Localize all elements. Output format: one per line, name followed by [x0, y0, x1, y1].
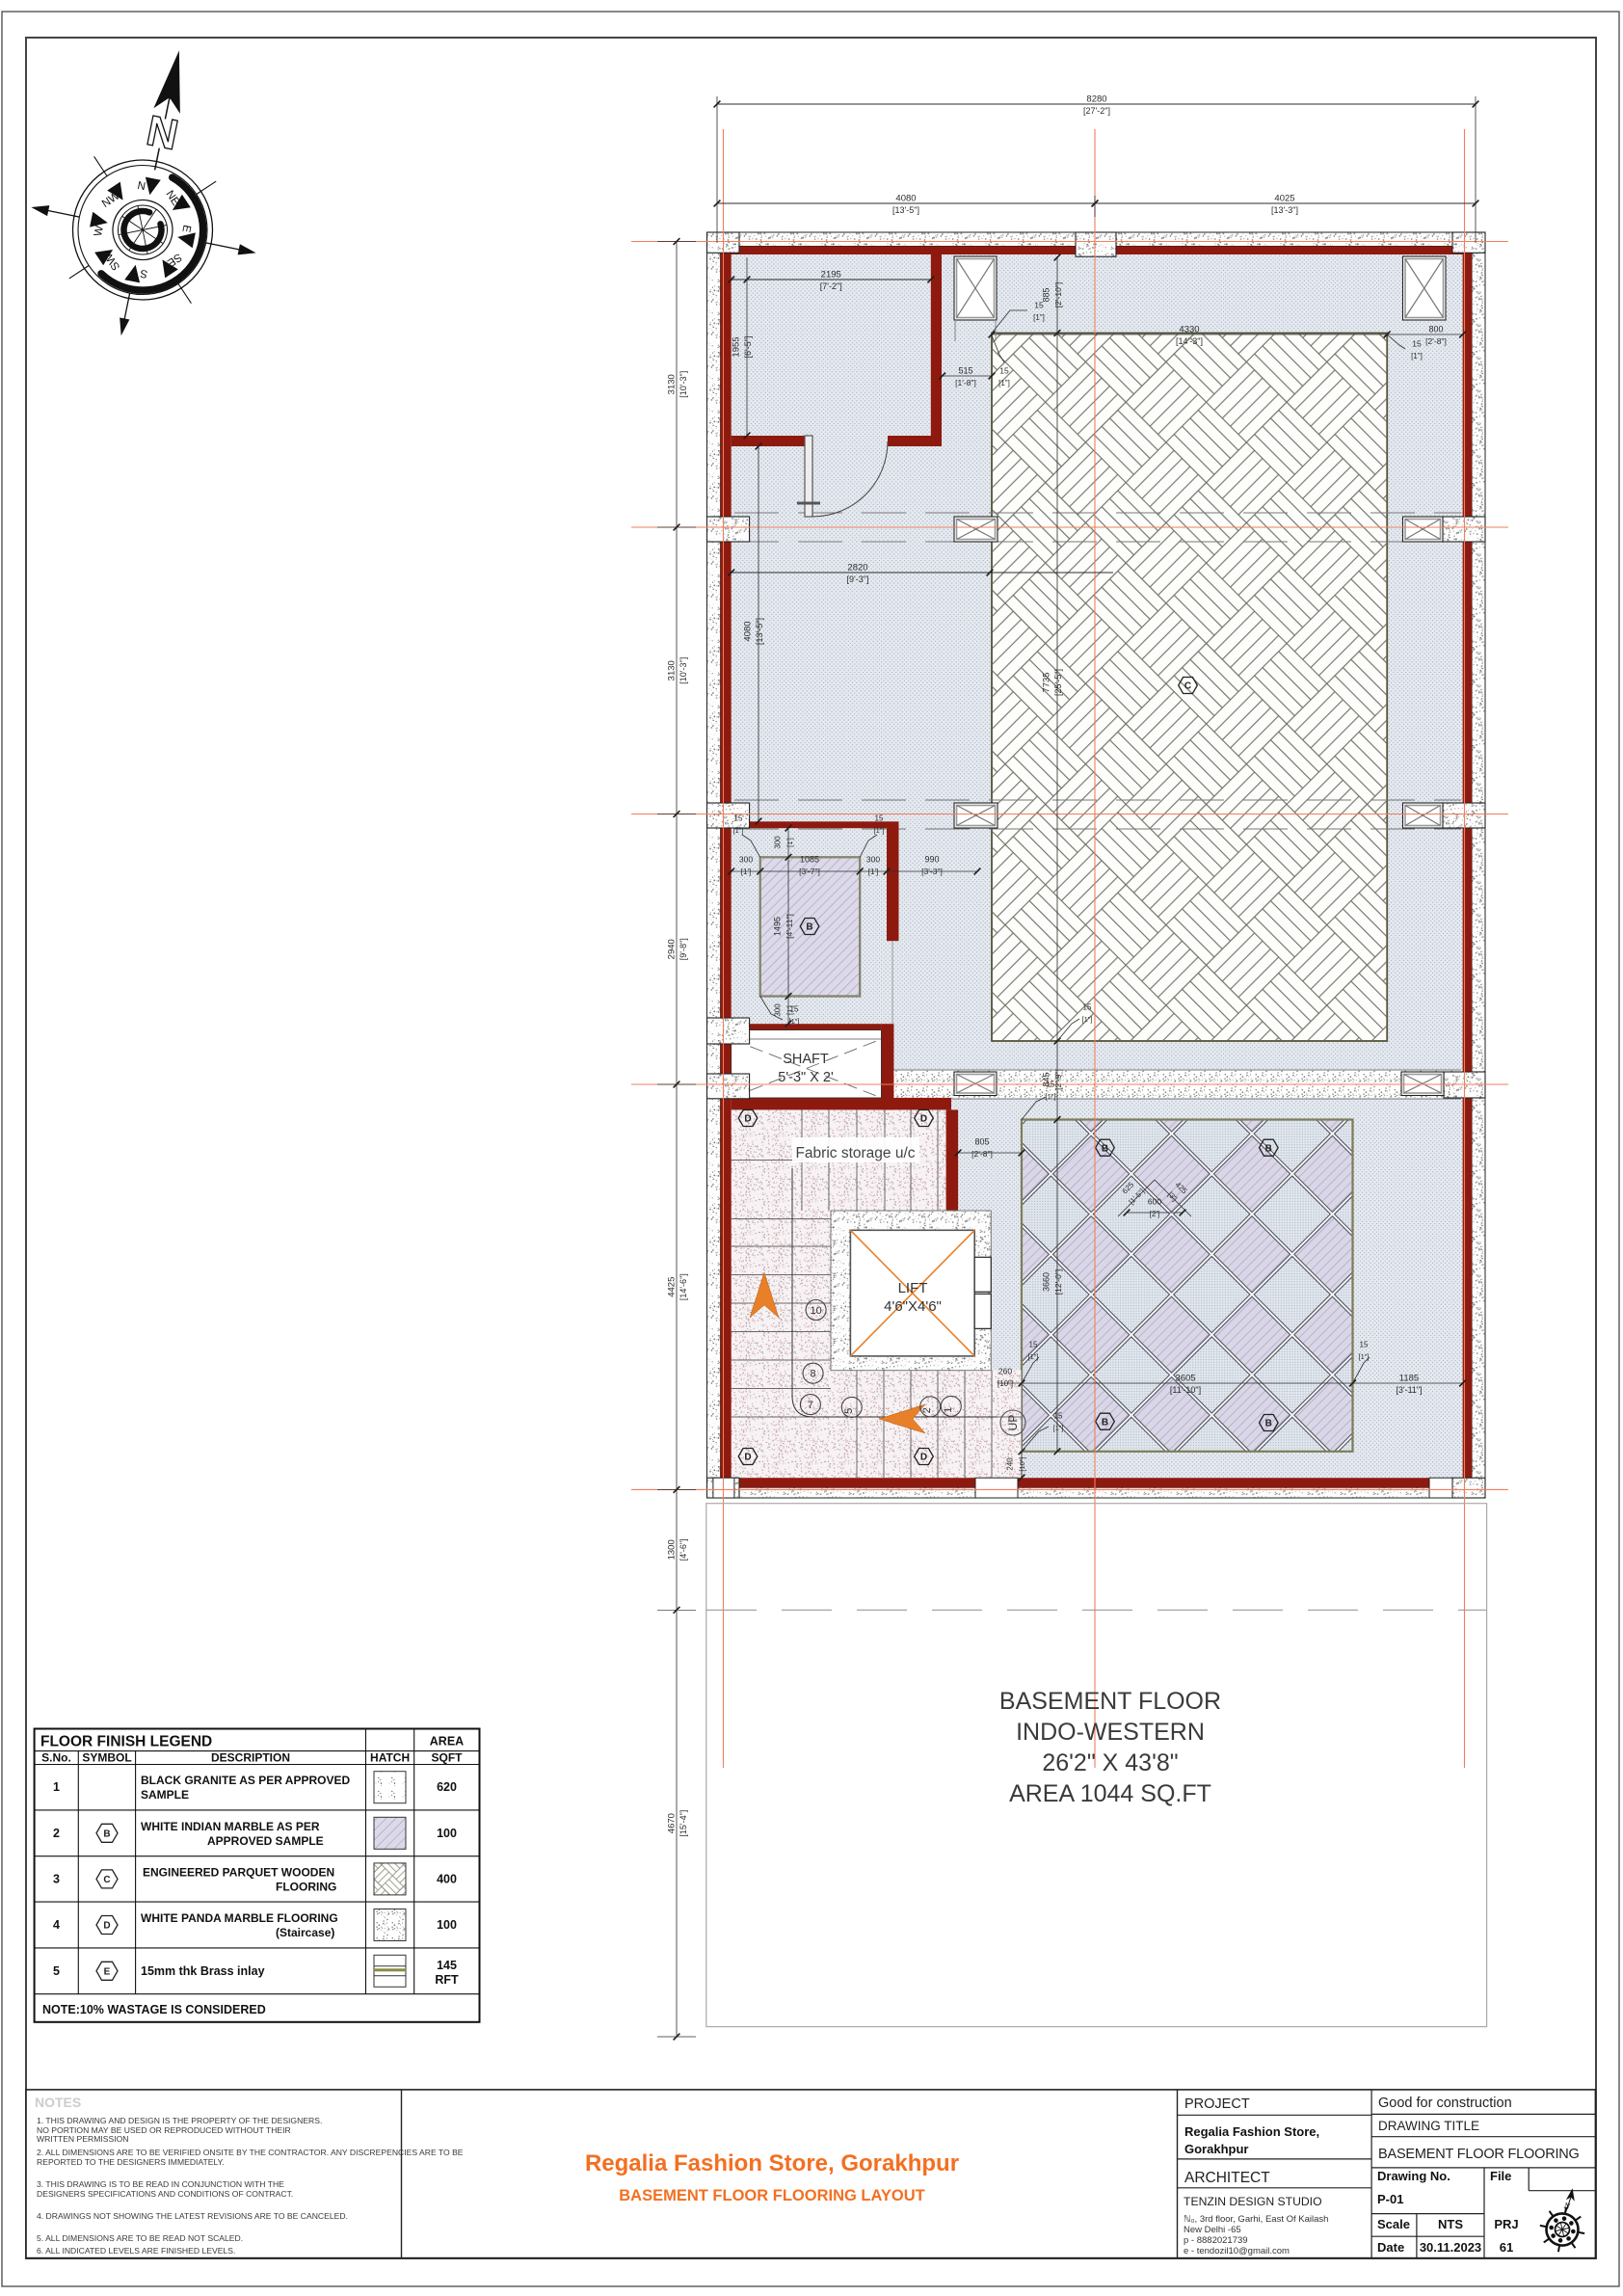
svg-text:1: 1	[53, 1780, 60, 1794]
svg-text:5: 5	[843, 1408, 855, 1414]
svg-text:SQFT: SQFT	[432, 1751, 464, 1765]
svg-text:8280: 8280	[1086, 94, 1106, 105]
svg-text:B: B	[1102, 1417, 1108, 1428]
svg-text:[2'-9"]: [2'-9"]	[1053, 1069, 1063, 1090]
svg-text:15: 15	[1029, 1341, 1038, 1349]
svg-text:UP: UP	[1006, 1415, 1020, 1431]
svg-text:2: 2	[921, 1407, 933, 1413]
svg-text:300: 300	[774, 836, 783, 849]
svg-text:Scale: Scale	[1377, 2217, 1410, 2231]
svg-text:400: 400	[437, 1872, 457, 1885]
svg-text:15: 15	[1054, 1412, 1063, 1421]
svg-text:260: 260	[998, 1367, 1012, 1376]
svg-text:15: 15	[1047, 1081, 1055, 1089]
svg-text:B: B	[1265, 1419, 1272, 1429]
svg-text:[2']: [2']	[1150, 1210, 1159, 1218]
svg-text:15mm thk Brass inlay: 15mm thk Brass inlay	[141, 1964, 265, 1978]
svg-text:300: 300	[774, 1003, 783, 1017]
svg-text:WRITTEN PERMISSION: WRITTEN PERMISSION	[37, 2134, 129, 2144]
svg-text:PROJECT: PROJECT	[1184, 2096, 1250, 2112]
svg-text:4330: 4330	[1179, 325, 1199, 335]
svg-text:1955: 1955	[732, 336, 742, 357]
svg-text:[1'-8"]: [1'-8"]	[955, 378, 976, 387]
svg-text:3130: 3130	[667, 660, 678, 681]
svg-text:[1"]: [1"]	[1411, 352, 1423, 360]
svg-text:ℕ₀, 3rd floor, Garhi, East Of: ℕ₀, 3rd floor, Garhi, East Of Kailash	[1184, 2214, 1328, 2225]
svg-text:B: B	[1102, 1143, 1108, 1154]
svg-text:D: D	[744, 1453, 751, 1463]
svg-text:[2'-8"]: [2'-8"]	[1425, 336, 1447, 346]
svg-text:[11'-10"]: [11'-10"]	[1170, 1385, 1201, 1395]
svg-text:6. ALL INDICATED LEVELS ARE FI: 6. ALL INDICATED LEVELS ARE FINISHED LEV…	[37, 2246, 235, 2256]
svg-text:1. THIS DRAWING AND DESIGN IS: 1. THIS DRAWING AND DESIGN IS THE PROPER…	[37, 2116, 322, 2125]
svg-text:[12'-0"]: [12'-0"]	[1053, 1269, 1063, 1295]
svg-text:7735: 7735	[1042, 672, 1052, 692]
svg-text:BASEMENT FLOOR FLOORING LAYOUT: BASEMENT FLOOR FLOORING LAYOUT	[619, 2187, 924, 2204]
svg-text:4: 4	[53, 1918, 60, 1932]
svg-text:C: C	[103, 1875, 110, 1885]
svg-text:Gorakhpur: Gorakhpur	[1184, 2142, 1248, 2156]
svg-text:D: D	[920, 1453, 927, 1463]
svg-text:S.No.: S.No.	[41, 1751, 71, 1765]
svg-text:D: D	[920, 1114, 927, 1125]
svg-text:[9'-8"]: [9'-8"]	[678, 938, 688, 960]
svg-text:[6'-5"]: [6'-5"]	[743, 336, 753, 359]
svg-text:15: 15	[734, 814, 743, 823]
svg-text:5'-3" X 2': 5'-3" X 2'	[778, 1070, 834, 1085]
svg-text:2940: 2940	[667, 939, 678, 959]
svg-text:[7'-2"]: [7'-2"]	[820, 281, 842, 291]
svg-text:61: 61	[1500, 2240, 1513, 2255]
svg-text:e - tendozil10@gmail.com: e - tendozil10@gmail.com	[1184, 2246, 1290, 2256]
svg-text:2: 2	[53, 1827, 60, 1840]
svg-text:8: 8	[811, 1369, 816, 1380]
svg-text:300: 300	[866, 855, 880, 865]
svg-text:[3'-3"]: [3'-3"]	[921, 867, 943, 876]
svg-text:1185: 1185	[1399, 1374, 1419, 1384]
svg-text:E: E	[104, 1966, 111, 1977]
svg-text:[9'-3"]: [9'-3"]	[847, 574, 869, 584]
svg-text:D: D	[744, 1114, 751, 1125]
svg-text:File: File	[1490, 2169, 1511, 2183]
svg-text:B: B	[1265, 1143, 1272, 1154]
svg-text:[13'-5"]: [13'-5"]	[892, 205, 919, 215]
svg-text:[1"]: [1"]	[1045, 1092, 1055, 1101]
svg-text:15: 15	[790, 1005, 799, 1014]
svg-text:3660: 3660	[1042, 1272, 1051, 1292]
svg-text:ARCHITECT: ARCHITECT	[1184, 2170, 1270, 2186]
svg-text:[25'-5"]: [25'-5"]	[1053, 669, 1063, 696]
svg-text:ENGINEERED PARQUET WOODEN: ENGINEERED PARQUET WOODEN	[143, 1865, 334, 1879]
svg-text:2. ALL DIMENSIONS ARE TO BE VE: 2. ALL DIMENSIONS ARE TO BE VERIFIED ONS…	[37, 2148, 464, 2157]
svg-text:240: 240	[1006, 1457, 1015, 1471]
svg-text:[1"]: [1"]	[788, 1017, 799, 1026]
svg-text:[1']: [1']	[868, 868, 878, 876]
svg-text:3130: 3130	[667, 374, 678, 394]
svg-text:[1"]: [1"]	[998, 379, 1010, 387]
svg-text:805: 805	[974, 1137, 989, 1147]
svg-text:[4'-11"]: [4'-11"]	[785, 914, 794, 939]
svg-text:BASEMENT FLOOR FLOORING: BASEMENT FLOOR FLOORING	[1378, 2147, 1580, 2162]
svg-text:[1"]: [1"]	[873, 826, 884, 835]
svg-text:3: 3	[53, 1872, 60, 1885]
svg-text:BLACK GRANITE AS PER APPROVED: BLACK GRANITE AS PER APPROVED	[141, 1774, 350, 1787]
svg-text:B: B	[806, 922, 812, 933]
svg-text:100: 100	[437, 1827, 457, 1840]
svg-text:[14'-6"]: [14'-6"]	[678, 1273, 688, 1300]
svg-text:C: C	[1184, 681, 1191, 692]
svg-text:[3'-7"]: [3'-7"]	[799, 867, 820, 876]
svg-text:Date: Date	[1377, 2240, 1404, 2255]
svg-text:(Staircase): (Staircase)	[276, 1926, 334, 1939]
svg-text:FLOORING: FLOORING	[276, 1880, 336, 1893]
svg-text:SHAFT: SHAFT	[783, 1052, 829, 1067]
svg-text:INDO-WESTERN: INDO-WESTERN	[1016, 1719, 1205, 1746]
svg-text:[1"]: [1"]	[1081, 1015, 1092, 1024]
svg-text:515: 515	[958, 366, 972, 376]
svg-text:15: 15	[1412, 339, 1422, 349]
svg-text:[1']: [1']	[785, 838, 794, 847]
svg-text:NOTE:10% WASTAGE IS CONSIDERED: NOTE:10% WASTAGE IS CONSIDERED	[42, 2003, 266, 2016]
svg-text:800: 800	[1428, 325, 1443, 334]
svg-text:APPROVED SAMPLE: APPROVED SAMPLE	[207, 1834, 324, 1848]
svg-text:10: 10	[810, 1305, 821, 1317]
svg-text:SAMPLE: SAMPLE	[141, 1788, 189, 1802]
svg-text:[14'-3"]: [14'-3"]	[1176, 336, 1203, 346]
svg-text:990: 990	[924, 855, 939, 865]
svg-text:[10'-3"]: [10'-3"]	[678, 657, 688, 684]
svg-text:WHITE INDIAN MARBLE AS PER: WHITE INDIAN MARBLE AS PER	[141, 1820, 320, 1833]
svg-text:1085: 1085	[800, 855, 819, 865]
svg-text:PRJ: PRJ	[1494, 2217, 1518, 2231]
svg-text:BASEMENT FLOOR: BASEMENT FLOOR	[999, 1688, 1221, 1715]
svg-text:4. DRAWINGS NOT SHOWING THE LA: 4. DRAWINGS NOT SHOWING THE LATEST REVIS…	[37, 2211, 348, 2221]
svg-text:30.11.2023: 30.11.2023	[1420, 2240, 1481, 2255]
svg-text:[1"]: [1"]	[1052, 1424, 1063, 1432]
svg-text:[4'-6"]: [4'-6"]	[678, 1538, 688, 1561]
svg-text:NOTES: NOTES	[35, 2095, 81, 2110]
svg-text:3. THIS DRAWING IS TO BE READ: 3. THIS DRAWING IS TO BE READ IN CONJUNC…	[37, 2179, 284, 2189]
svg-text:REPORTED TO THE DESIGNERS IMME: REPORTED TO THE DESIGNERS IMMEDIATELY.	[37, 2157, 225, 2167]
svg-text:[1"]: [1"]	[1358, 1352, 1369, 1361]
svg-text:[10"]: [10"]	[1018, 1456, 1026, 1471]
svg-text:[1"]: [1"]	[1033, 313, 1045, 322]
svg-text:15: 15	[875, 814, 884, 823]
svg-text:[1"]: [1"]	[1027, 1352, 1038, 1361]
svg-text:[1']: [1']	[741, 868, 751, 876]
svg-text:100: 100	[437, 1918, 457, 1932]
svg-text:4080: 4080	[743, 621, 754, 641]
svg-text:[13'-5"]: [13'-5"]	[755, 618, 764, 645]
svg-text:AREA 1044 SQ.FT: AREA 1044 SQ.FT	[1009, 1780, 1211, 1807]
svg-text:[15'-4"]: [15'-4"]	[678, 1810, 688, 1837]
svg-text:26'2" X 43'8": 26'2" X 43'8"	[1042, 1749, 1178, 1776]
svg-text:[3'-11"]: [3'-11"]	[1396, 1385, 1422, 1395]
svg-text:4670: 4670	[667, 1813, 678, 1833]
svg-text:RFT: RFT	[435, 1973, 459, 1987]
svg-text:[2'-8"]: [2'-8"]	[971, 1149, 993, 1159]
svg-text:Regalia Fashion Store, Gorakhp: Regalia Fashion Store, Gorakhpur	[585, 2150, 959, 2176]
svg-text:NTS: NTS	[1438, 2217, 1463, 2231]
svg-text:1300: 1300	[667, 1539, 678, 1560]
svg-text:15: 15	[999, 366, 1009, 376]
svg-text:4080: 4080	[895, 194, 916, 204]
svg-text:300: 300	[739, 855, 753, 865]
svg-text:Drawing No.: Drawing No.	[1377, 2169, 1450, 2183]
svg-text:DRAWING TITLE: DRAWING TITLE	[1378, 2119, 1479, 2133]
svg-text:p - 8882021739: p - 8882021739	[1184, 2235, 1248, 2246]
svg-text:3605: 3605	[1175, 1374, 1195, 1384]
svg-text:1: 1	[943, 1407, 954, 1413]
svg-text:600: 600	[1148, 1197, 1161, 1207]
svg-text:AREA: AREA	[430, 1735, 464, 1749]
svg-text:Fabric storage u/c: Fabric storage u/c	[795, 1145, 915, 1161]
svg-text:4'6"X4'6": 4'6"X4'6"	[884, 1298, 942, 1315]
svg-text:15: 15	[1083, 1003, 1092, 1012]
svg-text:TENZIN DESIGN STUDIO: TENZIN DESIGN STUDIO	[1184, 2195, 1322, 2208]
svg-text:WHITE PANDA MARBLE FLOORING: WHITE PANDA MARBLE FLOORING	[141, 1911, 338, 1925]
svg-text:2195: 2195	[821, 270, 841, 280]
svg-text:P-01: P-01	[1377, 2192, 1403, 2206]
svg-text:[10'-3"]: [10'-3"]	[678, 371, 688, 398]
svg-text:SYMBOL: SYMBOL	[82, 1751, 131, 1765]
svg-text:New Delhi -65: New Delhi -65	[1184, 2225, 1241, 2235]
svg-text:4425: 4425	[667, 1277, 678, 1297]
svg-text:145: 145	[437, 1959, 457, 1972]
svg-text:Regalia Fashion Store,: Regalia Fashion Store,	[1184, 2124, 1319, 2139]
svg-text:LIFT: LIFT	[898, 1280, 928, 1296]
svg-text:[10"]: [10"]	[998, 1379, 1013, 1388]
svg-text:1495: 1495	[773, 917, 783, 936]
svg-text:[2'-10"]: [2'-10"]	[1053, 282, 1063, 307]
svg-text:15: 15	[1034, 301, 1044, 310]
svg-text:B: B	[103, 1829, 110, 1839]
svg-text:[27'-2"]: [27'-2"]	[1083, 106, 1110, 116]
svg-text:[13'-3"]: [13'-3"]	[1271, 205, 1298, 215]
svg-text:D: D	[103, 1921, 110, 1932]
svg-text:2820: 2820	[847, 563, 867, 574]
svg-text:DESCRIPTION: DESCRIPTION	[211, 1751, 290, 1765]
svg-text:5: 5	[53, 1964, 60, 1978]
svg-text:5. ALL DIMENSIONS ARE TO BE RE: 5. ALL DIMENSIONS ARE TO BE READ NOT SCA…	[37, 2233, 243, 2243]
svg-text:4025: 4025	[1274, 194, 1294, 204]
svg-text:HATCH: HATCH	[370, 1751, 410, 1765]
svg-text:15: 15	[1360, 1341, 1369, 1349]
svg-text:[1"]: [1"]	[732, 826, 743, 835]
svg-text:FLOOR FINISH LEGEND: FLOOR FINISH LEGEND	[40, 1734, 212, 1750]
svg-text:Good for construction: Good for construction	[1378, 2096, 1512, 2111]
svg-text:7: 7	[808, 1400, 813, 1411]
svg-text:620: 620	[437, 1780, 457, 1794]
svg-text:DESIGNERS SPECIFICATIONS AND C: DESIGNERS SPECIFICATIONS AND CONDITIONS …	[37, 2189, 293, 2199]
